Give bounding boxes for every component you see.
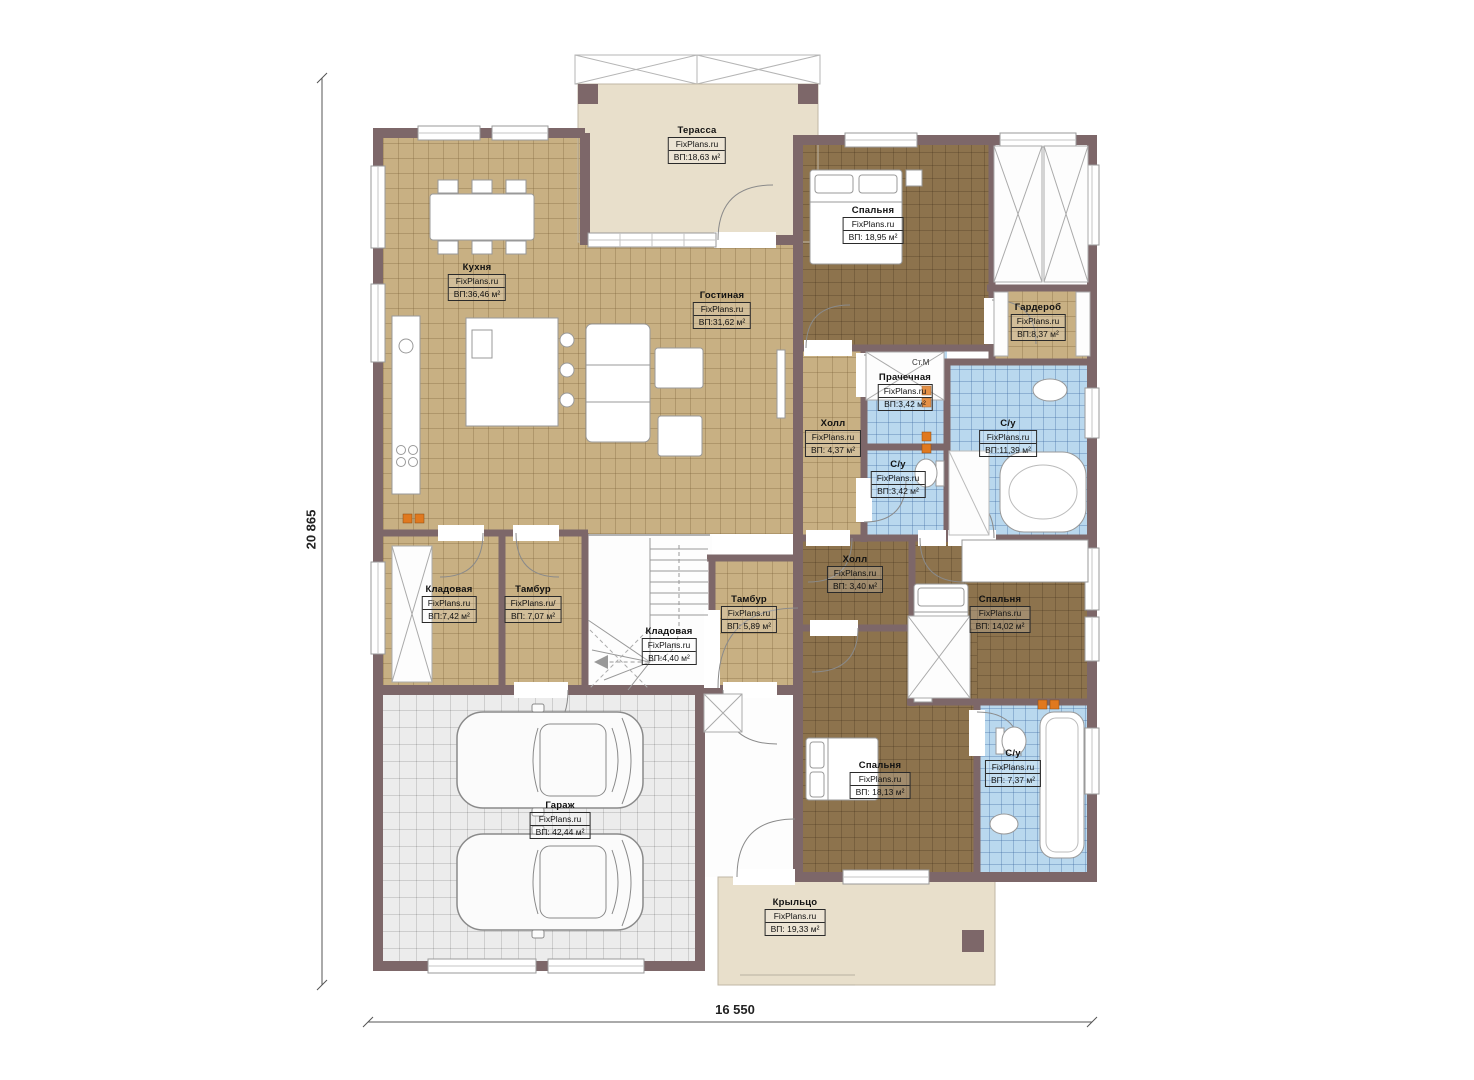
room-label-bath3: С/уFixPlans.ruВП: 7,37 м² bbox=[985, 748, 1041, 788]
brand-watermark: FixPlans.ru bbox=[879, 385, 932, 397]
room-name: Холл bbox=[827, 554, 883, 565]
room-area: ВП: 18,95 м² bbox=[844, 230, 903, 243]
room-area: ВП:36,46 м² bbox=[449, 287, 505, 300]
room-name: Терасса bbox=[668, 125, 726, 136]
room-label-living: ГостинаяFixPlans.ruВП:31,62 м² bbox=[693, 290, 751, 330]
brand-watermark: FixPlans.ru/ bbox=[506, 597, 561, 609]
room-label-garage: ГаражFixPlans.ruВП: 42,44 м² bbox=[530, 800, 591, 840]
dimension-label-width: 16 550 bbox=[690, 1002, 780, 1017]
corridor-closet bbox=[704, 694, 742, 732]
room-label-hall2: ХоллFixPlans.ruВП: 3,40 м² bbox=[827, 554, 883, 594]
brand-watermark: FixPlans.ru bbox=[669, 138, 725, 150]
room-name: Гостиная bbox=[693, 290, 751, 301]
room-name: Кладовая bbox=[642, 626, 697, 637]
room-label-bedroom2: СпальняFixPlans.ruВП: 14,02 м² bbox=[970, 594, 1031, 634]
room-area: ВП:8,37 м² bbox=[1012, 327, 1065, 340]
car-2 bbox=[457, 826, 643, 938]
room-label-pantry2: КладоваяFixPlans.ruВП:4,40 м² bbox=[642, 626, 697, 666]
room-label-bath-big: С/уFixPlans.ruВП:11,39 м² bbox=[979, 418, 1037, 458]
room-label-wardrobe: ГардеробFixPlans.ruВП:8,37 м² bbox=[1011, 302, 1066, 342]
room-area: ВП:18,63 м² bbox=[669, 150, 725, 163]
nightstand-1 bbox=[906, 170, 922, 186]
room-name: С/у bbox=[979, 418, 1037, 429]
room-label-bedroom1: СпальняFixPlans.ruВП: 18,95 м² bbox=[843, 205, 904, 245]
dining-table bbox=[430, 180, 534, 254]
brand-watermark: FixPlans.ru bbox=[722, 607, 776, 619]
bathtub-big bbox=[1000, 452, 1086, 532]
brand-watermark: FixPlans.ru bbox=[694, 303, 750, 315]
room-label-vestibule2: ТамбурFixPlans.ruВП: 5,89 м² bbox=[721, 594, 777, 634]
wardrobe-bedroom3 bbox=[908, 616, 970, 698]
dimension-label-height: 20 865 bbox=[304, 500, 319, 560]
room-name: Тамбур bbox=[505, 584, 562, 595]
room-label-terrace: ТерассаFixPlans.ruВП:18,63 м² bbox=[668, 125, 726, 165]
room-label-porch: КрыльцоFixPlans.ruВП: 19,33 м² bbox=[765, 897, 826, 937]
room-area: ВП:4,40 м² bbox=[643, 651, 696, 664]
room-area: ВП: 7,37 м² bbox=[986, 773, 1040, 786]
room-area: ВП:31,62 м² bbox=[694, 315, 750, 328]
room-area: ВП: 4,37 м² bbox=[806, 443, 860, 456]
room-area: ВП:7,42 м² bbox=[423, 609, 476, 622]
stairs bbox=[588, 538, 708, 690]
room-area: ВП: 3,40 м² bbox=[828, 579, 882, 592]
side-table bbox=[658, 416, 702, 456]
porch-outline bbox=[718, 877, 995, 985]
shower-nook bbox=[949, 451, 989, 535]
sink-3 bbox=[990, 814, 1018, 834]
coffee-table bbox=[655, 348, 703, 388]
brand-watermark: FixPlans.ru bbox=[851, 773, 910, 785]
room-name: Гардероб bbox=[1011, 302, 1066, 313]
room-area: ВП: 42,44 м² bbox=[531, 825, 590, 838]
sink-big-bath bbox=[1033, 379, 1067, 401]
kitchen-island bbox=[466, 318, 574, 426]
room-name: Гараж bbox=[530, 800, 591, 811]
porch-steps bbox=[740, 975, 855, 985]
sofa bbox=[586, 324, 650, 442]
brand-watermark: FixPlans.ru bbox=[423, 597, 476, 609]
tv-panel bbox=[777, 350, 785, 418]
brand-watermark: FixPlans.ru bbox=[643, 639, 696, 651]
brand-watermark: FixPlans.ru bbox=[806, 431, 860, 443]
floor-plan: ТерассаFixPlans.ruВП:18,63 м² КухняFixPl… bbox=[0, 0, 1474, 1080]
terrace-roof bbox=[575, 55, 820, 84]
room-area: ВП: 5,89 м² bbox=[722, 619, 776, 632]
room-label-vestibule1: ТамбурFixPlans.ru/ВП: 7,07 м² bbox=[505, 584, 562, 624]
room-area: ВП: 18,13 м² bbox=[851, 785, 910, 798]
room-area: ВП:3,42 м² bbox=[872, 484, 925, 497]
walls-and-fixtures-svg bbox=[0, 0, 1474, 1080]
room-area: ВП: 14,02 м² bbox=[971, 619, 1030, 632]
room-name: Спальня bbox=[970, 594, 1031, 605]
room-name: С/у bbox=[985, 748, 1041, 759]
room-label-pantry1: КладоваяFixPlans.ruВП:7,42 м² bbox=[422, 584, 477, 624]
room-name: Спальня bbox=[850, 760, 911, 771]
room-label-bedroom3: СпальняFixPlans.ruВП: 18,13 м² bbox=[850, 760, 911, 800]
room-area: ВП:3,42 м² bbox=[879, 397, 932, 410]
room-name: Крыльцо bbox=[765, 897, 826, 908]
brand-watermark: FixPlans.ru bbox=[980, 431, 1036, 443]
room-area: ВП: 19,33 м² bbox=[766, 922, 825, 935]
brand-watermark: FixPlans.ru bbox=[828, 567, 882, 579]
kitchen-counter bbox=[392, 316, 420, 494]
room-name: Холл bbox=[805, 418, 861, 429]
posts bbox=[578, 84, 984, 952]
brand-watermark: FixPlans.ru bbox=[449, 275, 505, 287]
room-name: Спальня bbox=[843, 205, 904, 216]
brand-watermark: FixPlans.ru bbox=[1012, 315, 1065, 327]
room-area: ВП: 7,07 м² bbox=[506, 609, 561, 622]
room-area: ВП:11,39 м² bbox=[980, 443, 1036, 456]
brand-watermark: FixPlans.ru bbox=[844, 218, 903, 230]
room-label-kitchen: КухняFixPlans.ruВП:36,46 м² bbox=[448, 262, 506, 302]
room-name: Кухня bbox=[448, 262, 506, 273]
bathtub-3 bbox=[1040, 712, 1084, 858]
room-name: Кладовая bbox=[422, 584, 477, 595]
brand-watermark: FixPlans.ru bbox=[986, 761, 1040, 773]
builtin-closet-2 bbox=[962, 540, 1088, 582]
room-name: Тамбур bbox=[721, 594, 777, 605]
room-name: С/у bbox=[871, 459, 926, 470]
room-label-laundry: ПрачечнаяFixPlans.ruВП:3,42 м² bbox=[878, 372, 933, 412]
washing-machine-marker: Ст.М bbox=[912, 358, 929, 367]
room-label-hall1: ХоллFixPlans.ruВП: 4,37 м² bbox=[805, 418, 861, 458]
room-name: Прачечная bbox=[878, 372, 933, 383]
brand-watermark: FixPlans.ru bbox=[766, 910, 825, 922]
brand-watermark: FixPlans.ru bbox=[872, 472, 925, 484]
brand-watermark: FixPlans.ru bbox=[971, 607, 1030, 619]
room-label-wc-small: С/уFixPlans.ruВП:3,42 м² bbox=[871, 459, 926, 499]
brand-watermark: FixPlans.ru bbox=[531, 813, 590, 825]
